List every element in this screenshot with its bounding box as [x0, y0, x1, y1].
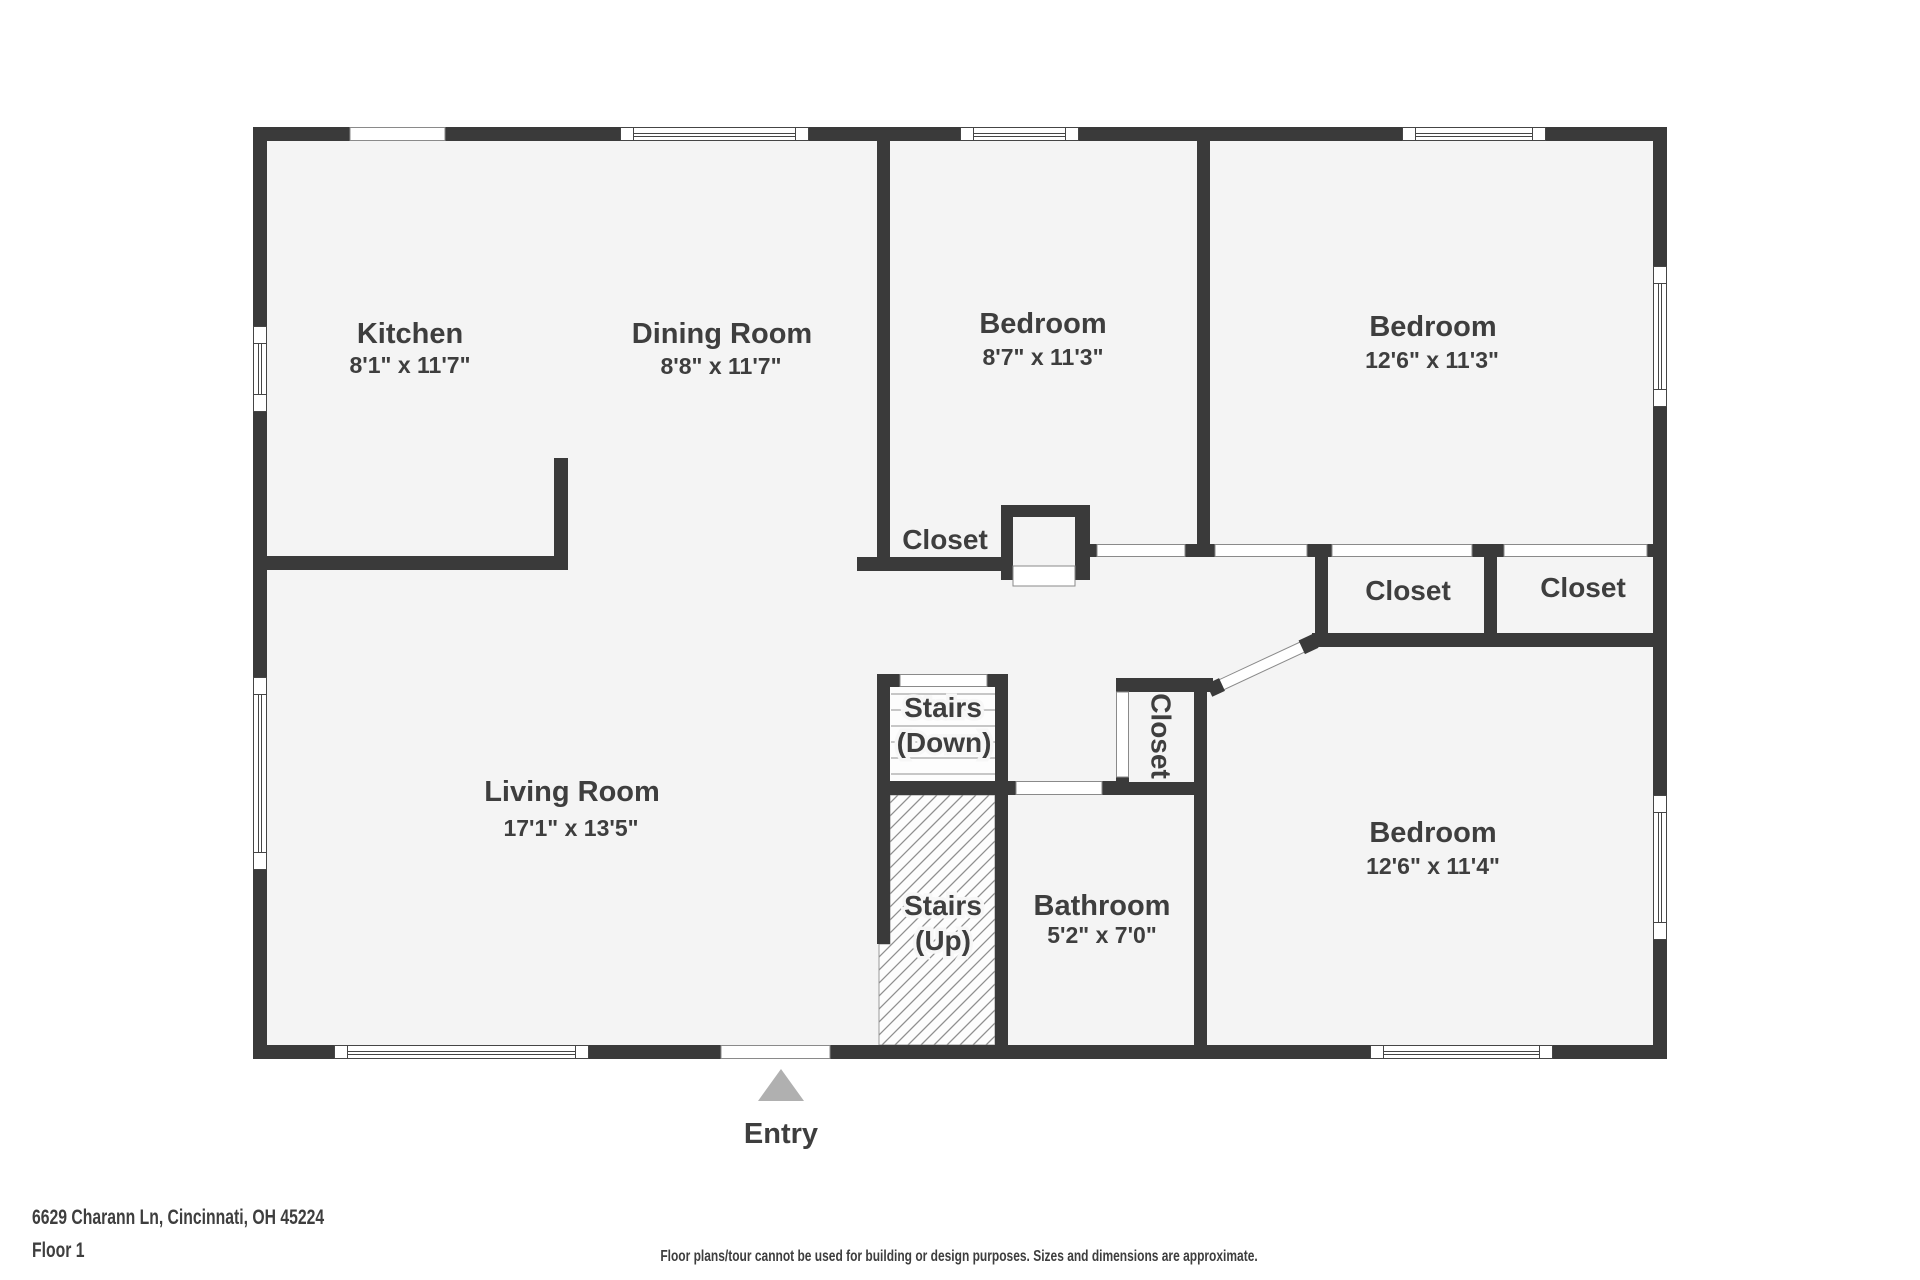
svg-text:12'6" x 11'3": 12'6" x 11'3": [1365, 347, 1499, 373]
svg-text:Living Room: Living Room: [484, 776, 660, 808]
svg-text:Floor 1: Floor 1: [32, 1238, 84, 1262]
svg-text:Closet: Closet: [1540, 572, 1626, 603]
svg-text:Closet: Closet: [1146, 693, 1177, 779]
svg-text:Closet: Closet: [1365, 575, 1451, 606]
svg-text:Bedroom: Bedroom: [1369, 311, 1496, 343]
svg-text:Bedroom: Bedroom: [1369, 817, 1496, 849]
svg-text:Dining Room: Dining Room: [632, 318, 812, 350]
svg-text:(Up): (Up): [915, 925, 971, 956]
svg-text:8'7" x 11'3": 8'7" x 11'3": [982, 344, 1103, 370]
svg-text:6629 Charann Ln, Cincinnati, O: 6629 Charann Ln, Cincinnati, OH 45224: [32, 1205, 325, 1229]
svg-text:Closet: Closet: [902, 524, 988, 555]
svg-text:Bathroom: Bathroom: [1034, 890, 1171, 922]
svg-text:5'2" x 7'0": 5'2" x 7'0": [1047, 922, 1157, 948]
svg-text:8'8" x 11'7": 8'8" x 11'7": [660, 353, 781, 379]
svg-text:Kitchen: Kitchen: [357, 318, 463, 350]
svg-text:Entry: Entry: [744, 1118, 818, 1150]
svg-text:17'1" x 13'5": 17'1" x 13'5": [503, 815, 638, 841]
svg-text:(Down): (Down): [897, 727, 992, 758]
svg-text:Stairs: Stairs: [904, 890, 982, 921]
svg-text:12'6" x 11'4": 12'6" x 11'4": [1366, 853, 1500, 879]
svg-text:8'1" x 11'7": 8'1" x 11'7": [349, 352, 470, 378]
svg-text:Bedroom: Bedroom: [979, 308, 1106, 340]
svg-text:Floor plans/tour cannot be use: Floor plans/tour cannot be used for buil…: [660, 1246, 1257, 1264]
svg-text:Stairs: Stairs: [904, 692, 982, 723]
